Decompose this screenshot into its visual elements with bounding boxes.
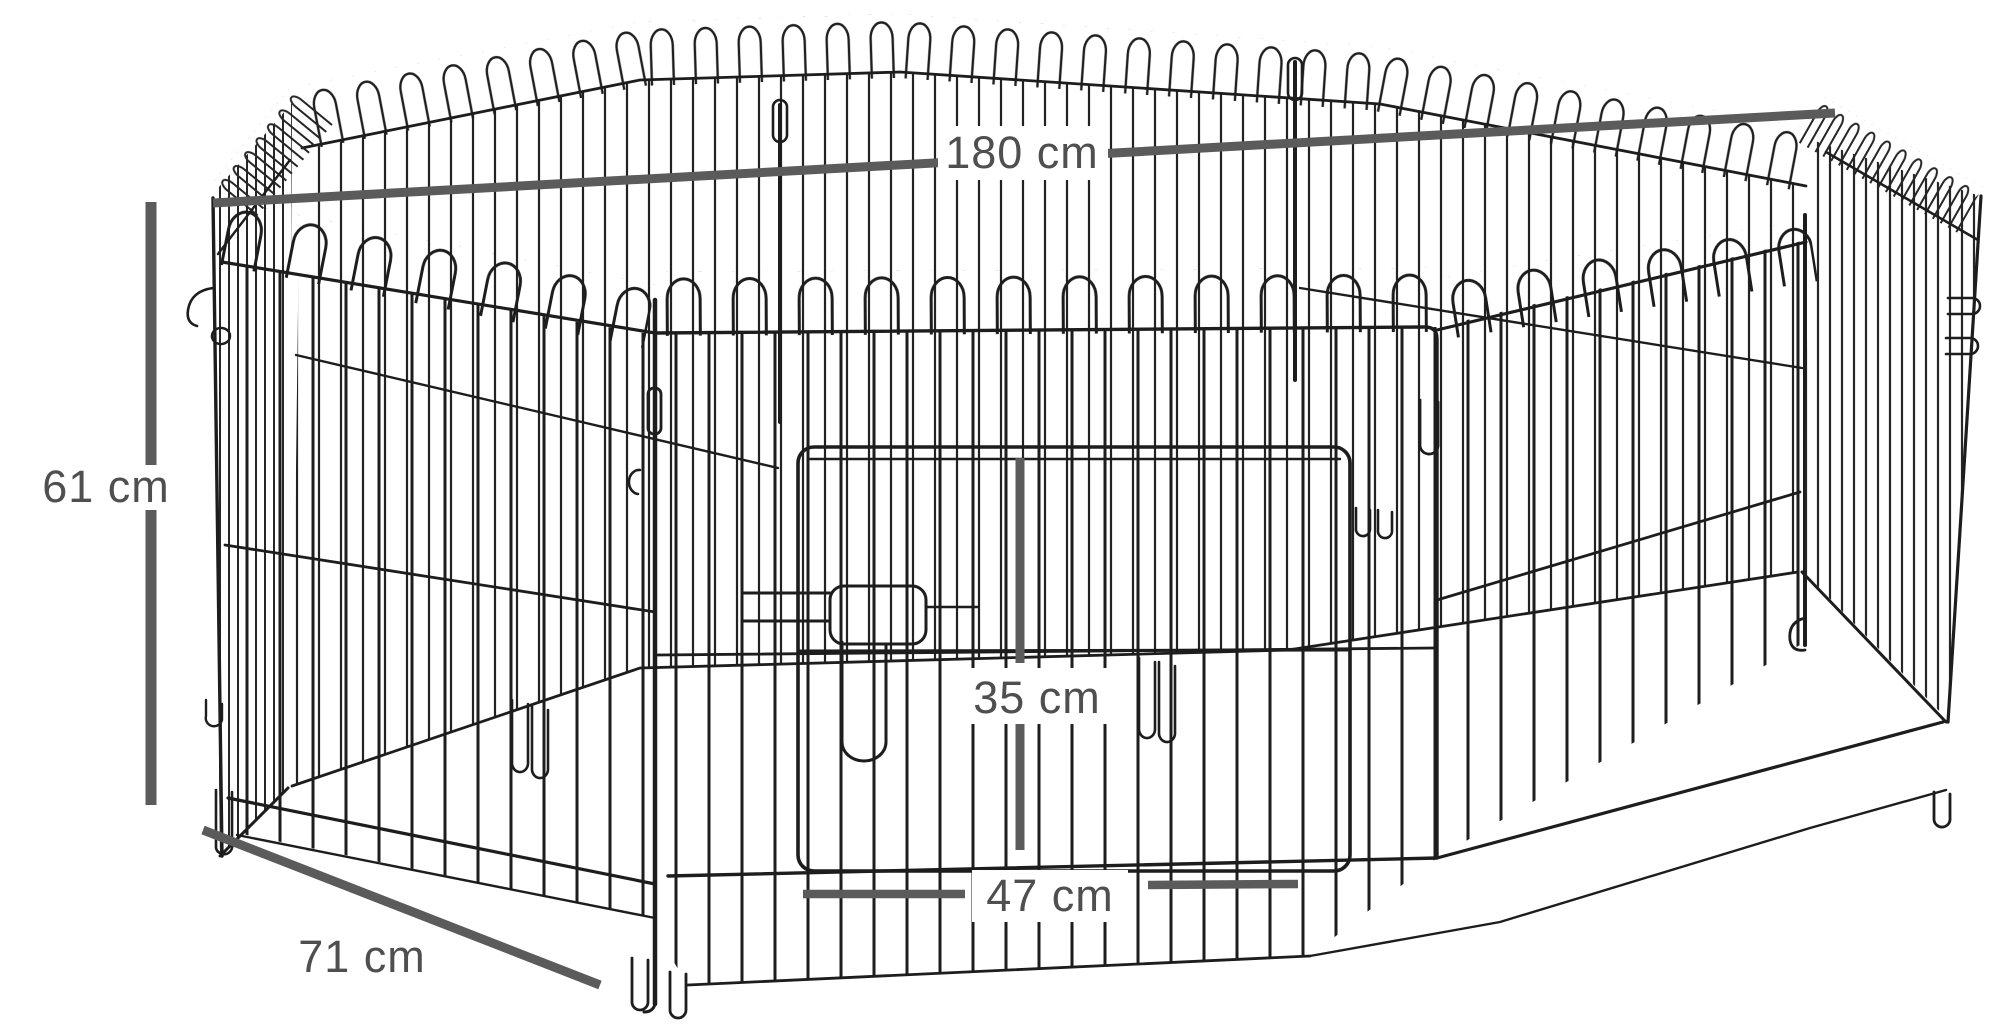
front-foot-right <box>670 972 686 1018</box>
playpen-dimension-diagram: 180 cm 61 cm 35 cm 47 cm 71 cm <box>0 0 2000 1026</box>
front-foot-left <box>632 958 648 1010</box>
corner-hook-top-left <box>188 288 213 326</box>
front-left-panel <box>210 200 656 918</box>
door-mid-rail <box>800 650 1348 651</box>
dimension-panel-height-label: 61 cm <box>42 461 170 512</box>
dimension-door-width-line-right <box>1148 884 1298 885</box>
right-panel-foot <box>1934 792 1950 827</box>
dimension-panel-width-label: 71 cm <box>298 931 426 982</box>
dimension-overall-width-label: 180 cm <box>945 127 1099 178</box>
right-side-panel <box>1796 96 1983 827</box>
dimension-door-height-label: 35 cm <box>973 672 1101 723</box>
playpen-illustration: 180 cm 61 cm 35 cm 47 cm 71 cm <box>0 0 2000 1026</box>
dimension-door-width-label: 47 cm <box>986 870 1114 921</box>
